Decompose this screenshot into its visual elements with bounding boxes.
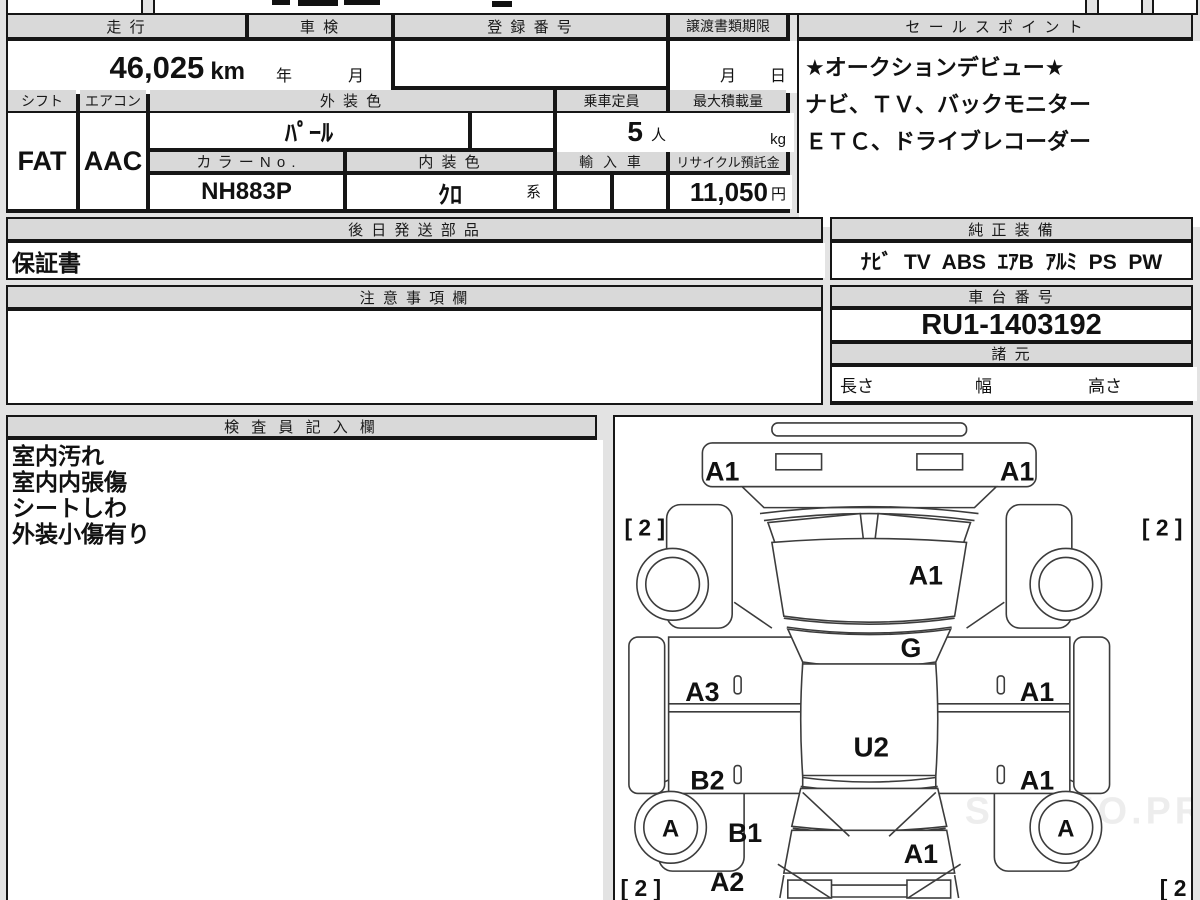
tire-grade-front-right: [ 2 ] <box>1142 514 1183 540</box>
tire-grade-rear-right: [ 2 ] <box>1160 875 1191 900</box>
notes-header: 注 意 事 項 欄 <box>8 287 821 307</box>
color-no-header: カ ラ ー N o . <box>150 152 343 171</box>
sales-points-body: ★オークションデビュー★ ナビ、ＴＶ、バックモニター ＥＴＣ、ドライブレコーダー <box>799 41 1200 227</box>
aircon-header: エアコン <box>80 90 146 111</box>
windshield <box>788 629 951 667</box>
damage-label-roof: U2 <box>853 732 889 763</box>
car-diagram: WEB STUDIO.PRO <box>615 417 1191 900</box>
damage-label-tailgate: A1 <box>904 839 938 869</box>
sales-point-line: ★オークションデビュー★ <box>805 49 1064 86</box>
exterior-color-extra-cell <box>472 113 553 148</box>
specs-header: 諸 元 <box>832 344 1191 363</box>
damage-label-front-bumper-left: A1 <box>705 457 739 487</box>
inspection-year-label: 年 <box>276 62 292 86</box>
recycle-deposit-unit: 円 <box>771 183 786 209</box>
interior-color-header: 内 装 色 <box>347 152 553 171</box>
capacity-value: 5 <box>627 116 643 148</box>
clipped-text-fragment <box>492 1 512 7</box>
damage-label-left-front-door: A3 <box>685 677 719 707</box>
damage-label-front-bumper-right: A1 <box>1000 457 1034 487</box>
sales-point-line: ナビ、ＴＶ、バックモニター <box>805 86 1091 123</box>
recycle-deposit-header: リサイクル預託金 <box>670 152 786 171</box>
front-bumper <box>702 443 1036 487</box>
auction-sheet: 走 行 車 検 登 録 番 号 譲渡書類期限 46,025 km 年 月 月 日… <box>0 0 1200 900</box>
chassis-value: RU1-1403192 <box>832 310 1191 340</box>
clipped-text-fragment <box>298 0 338 6</box>
shift-value: FAT <box>8 113 76 209</box>
tire-grade-front-left: [ 2 ] <box>625 514 666 540</box>
wheel-grade-rear-left: A <box>662 815 679 842</box>
equipment-header: 純 正 装 備 <box>832 219 1191 239</box>
equipment-table: 純 正 装 備 ﾅﾋﾞ TV ABS ｴｱB ｱﾙﾐ PS PW <box>830 217 1193 280</box>
damage-label-left-quarter: B1 <box>728 818 762 848</box>
front-right-wheel <box>1030 548 1102 620</box>
exterior-color-header: 外 装 色 <box>150 90 553 111</box>
inspection-value-cell: 年 月 <box>249 41 391 93</box>
damage-label-left-rear-corner: A2 <box>710 867 744 897</box>
inspector-header: 検 査 員 記 入 欄 <box>8 417 595 436</box>
import-car-cell-1 <box>557 175 610 209</box>
vehicle-info-table: 走 行 車 検 登 録 番 号 譲渡書類期限 46,025 km 年 月 月 日… <box>6 13 790 213</box>
notes-table: 注 意 事 項 欄 <box>6 285 823 405</box>
inspector-line: 室内汚れ <box>12 443 104 469</box>
mileage-value-cell: 46,025 km <box>8 41 261 94</box>
clipped-text-fragment <box>344 0 380 5</box>
inspector-line: シートしわ <box>12 495 127 521</box>
later-parts-table: 後 日 発 送 部 品 保証書 <box>6 217 823 280</box>
mileage-header: 走 行 <box>8 15 245 37</box>
recycle-deposit-value: 11,050 <box>690 177 768 208</box>
inspector-line: 室内内張傷 <box>12 469 127 495</box>
mileage-unit: km <box>210 58 245 86</box>
import-car-header: 輸 入 車 <box>557 152 666 171</box>
later-parts-value: 保証書 <box>8 243 825 278</box>
sales-points-header: セ ー ル ス ポ イ ン ト <box>799 15 1191 37</box>
import-car-cell-2 <box>614 175 666 209</box>
inspection-month-label: 月 <box>348 62 364 86</box>
car-diagram-box: WEB STUDIO.PRO <box>613 415 1193 900</box>
transfer-deadline-value-cell: 月 日 <box>670 41 798 93</box>
equipment-value: ﾅﾋﾞ TV ABS ｴｱB ｱﾙﾐ PS PW <box>832 243 1191 278</box>
shift-header: シフト <box>8 90 76 111</box>
rear-glass <box>792 788 947 830</box>
damage-label-right-front-door: A1 <box>1020 677 1054 707</box>
wheel-grade-rear-right: A <box>1057 815 1074 842</box>
left-sill <box>629 637 665 793</box>
tire-grade-rear-left: [ 2 ] <box>621 875 662 900</box>
exterior-color-value: ﾊﾟｰﾙ <box>150 113 468 148</box>
inspection-header: 車 検 <box>249 15 391 37</box>
clipped-text-fragment <box>272 0 290 5</box>
mileage-value: 46,025 <box>109 50 204 86</box>
front-left-wheel <box>637 548 709 620</box>
interior-color-value: ｸﾛ <box>438 175 462 209</box>
registration-no-value-cell <box>395 41 666 86</box>
front-bumper-lower <box>742 487 996 508</box>
damage-label-hood: A1 <box>909 560 943 590</box>
later-parts-header: 後 日 発 送 部 品 <box>8 219 821 239</box>
inspector-table: 検 査 員 記 入 欄 室内汚れ 室内内張傷 シートしわ 外装小傷有り <box>6 415 597 900</box>
spec-length-cell: 長さ <box>832 367 971 401</box>
right-sill <box>1074 637 1110 793</box>
car-diagram-canvas: WEB STUDIO.PRO <box>615 417 1191 900</box>
deadline-month-label: 月 <box>720 62 736 86</box>
registration-no-header: 登 録 番 号 <box>395 15 666 37</box>
deadline-day-label: 日 <box>770 62 786 86</box>
inspector-body: 室内汚れ 室内内張傷 シートしわ 外装小傷有り <box>8 440 603 900</box>
interior-color-value-cell: ｸﾛ 系 <box>347 175 553 209</box>
notes-body <box>8 311 821 403</box>
interior-color-suffix: 系 <box>526 181 541 202</box>
max-load-unit: kg <box>770 131 786 148</box>
color-no-value: NH883P <box>150 175 343 209</box>
recycle-deposit-value-cell: 11,050 円 <box>670 175 792 209</box>
damage-label-left-rear-door: B2 <box>690 765 724 795</box>
left-side-panel <box>669 637 803 793</box>
sales-point-line: ＥＴＣ、ドライブレコーダー <box>805 123 1091 160</box>
max-load-value-cell: kg <box>670 113 794 152</box>
sales-points-panel: セ ー ル ス ポ イ ン ト ★オークションデビュー★ ナビ、ＴＶ、バックモニ… <box>797 13 1193 213</box>
aircon-value: AAC <box>80 113 146 209</box>
capacity-header: 乗車定員 <box>557 90 666 111</box>
chassis-table: 車 台 番 号 RU1-1403192 諸 元 長さ 幅 高さ <box>830 285 1193 405</box>
damage-label-windshield: G <box>901 633 922 663</box>
spec-height-cell: 高さ <box>1080 367 1197 401</box>
spec-width-cell: 幅 <box>967 367 1084 401</box>
front-bumper-strip <box>772 423 967 436</box>
chassis-header: 車 台 番 号 <box>832 287 1191 306</box>
max-load-header: 最大積載量 <box>670 90 786 111</box>
damage-label-right-rear-door: A1 <box>1020 765 1054 795</box>
transfer-deadline-header: 譲渡書類期限 <box>670 15 786 37</box>
capacity-unit: 人 <box>651 124 666 148</box>
inspector-line: 外装小傷有り <box>12 521 150 547</box>
